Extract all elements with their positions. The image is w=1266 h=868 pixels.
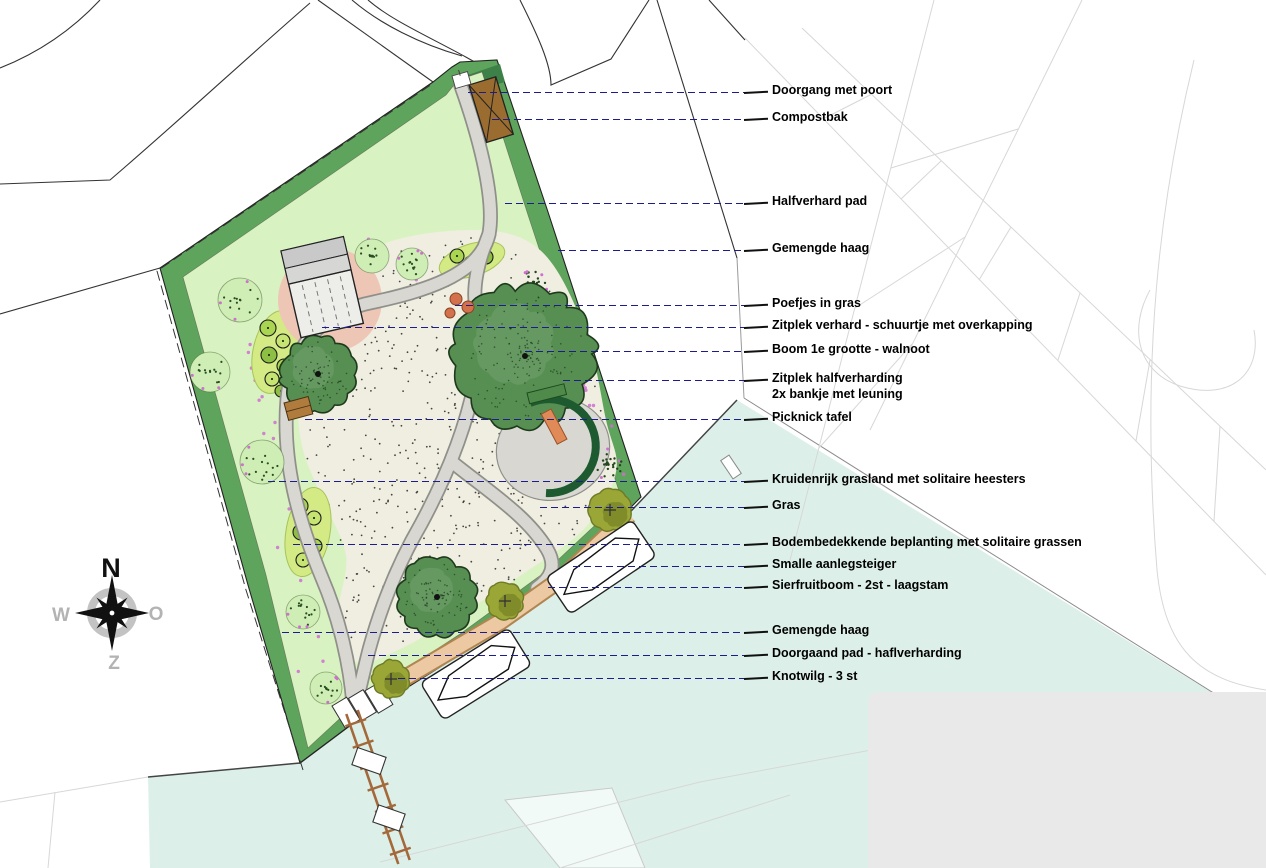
annotation-label: Bodembedekkende beplanting met solitaire… <box>772 535 1082 549</box>
annotation-label: Gemengde haag <box>772 241 869 255</box>
corner-panel <box>868 692 1266 868</box>
leader-line <box>492 119 744 120</box>
annotation-label: Sierfruitboom - 2st - laagstam <box>772 578 948 592</box>
leader-line <box>305 419 744 420</box>
compass-north-label: N <box>101 553 121 583</box>
compass-west-label: W <box>52 605 70 626</box>
leader-line <box>573 566 744 567</box>
annotation-label-line2: 2x bankje met leuning <box>772 387 903 401</box>
annotation-label: Knotwilg - 3 st <box>772 669 857 683</box>
annotation-label: Kruidenrijk grasland met solitaire heest… <box>772 472 1026 486</box>
leader-line <box>368 655 744 656</box>
leader-line <box>558 250 744 251</box>
annotation-label: Compostbak <box>772 110 848 124</box>
leader-line <box>322 327 744 328</box>
annotation-label: Halfverhard pad <box>772 194 867 208</box>
leader-line <box>468 92 744 93</box>
annotation-label: Poefjes in gras <box>772 296 861 310</box>
annotation-label: Zitplek verhard - schuurtje met overkapp… <box>772 318 1032 332</box>
leader-line <box>282 632 744 633</box>
compass-south-label: Z <box>108 653 120 674</box>
leader-line <box>548 587 744 588</box>
annotation-label: Gemengde haag <box>772 623 869 637</box>
annotation-label: Zitplek halfverharding <box>772 371 903 385</box>
annotation-label: Picknick tafel <box>772 410 852 424</box>
leader-line <box>525 351 744 352</box>
annotation-label: Boom 1e grootte - walnoot <box>772 342 930 356</box>
compass-rose: N W O Z <box>52 553 163 674</box>
leader-line <box>293 544 744 545</box>
annotation-label: Gras <box>772 498 801 512</box>
leader-line <box>268 481 744 482</box>
garden-plan-page: N W O Z Doorgang met poort Compostbak Ha… <box>0 0 1266 868</box>
compass-east-label: O <box>149 604 164 625</box>
leader-line <box>505 203 744 204</box>
leader-line <box>540 507 744 508</box>
annotation-label: Doorgaand pad - haflverharding <box>772 646 962 660</box>
leader-line <box>563 380 744 381</box>
annotation-label: Doorgang met poort <box>772 83 892 97</box>
leader-line <box>398 678 744 679</box>
annotation-label: Smalle aanlegsteiger <box>772 557 896 571</box>
leader-line <box>455 305 744 306</box>
garden-plan-drawing: N W O Z <box>0 0 1266 868</box>
